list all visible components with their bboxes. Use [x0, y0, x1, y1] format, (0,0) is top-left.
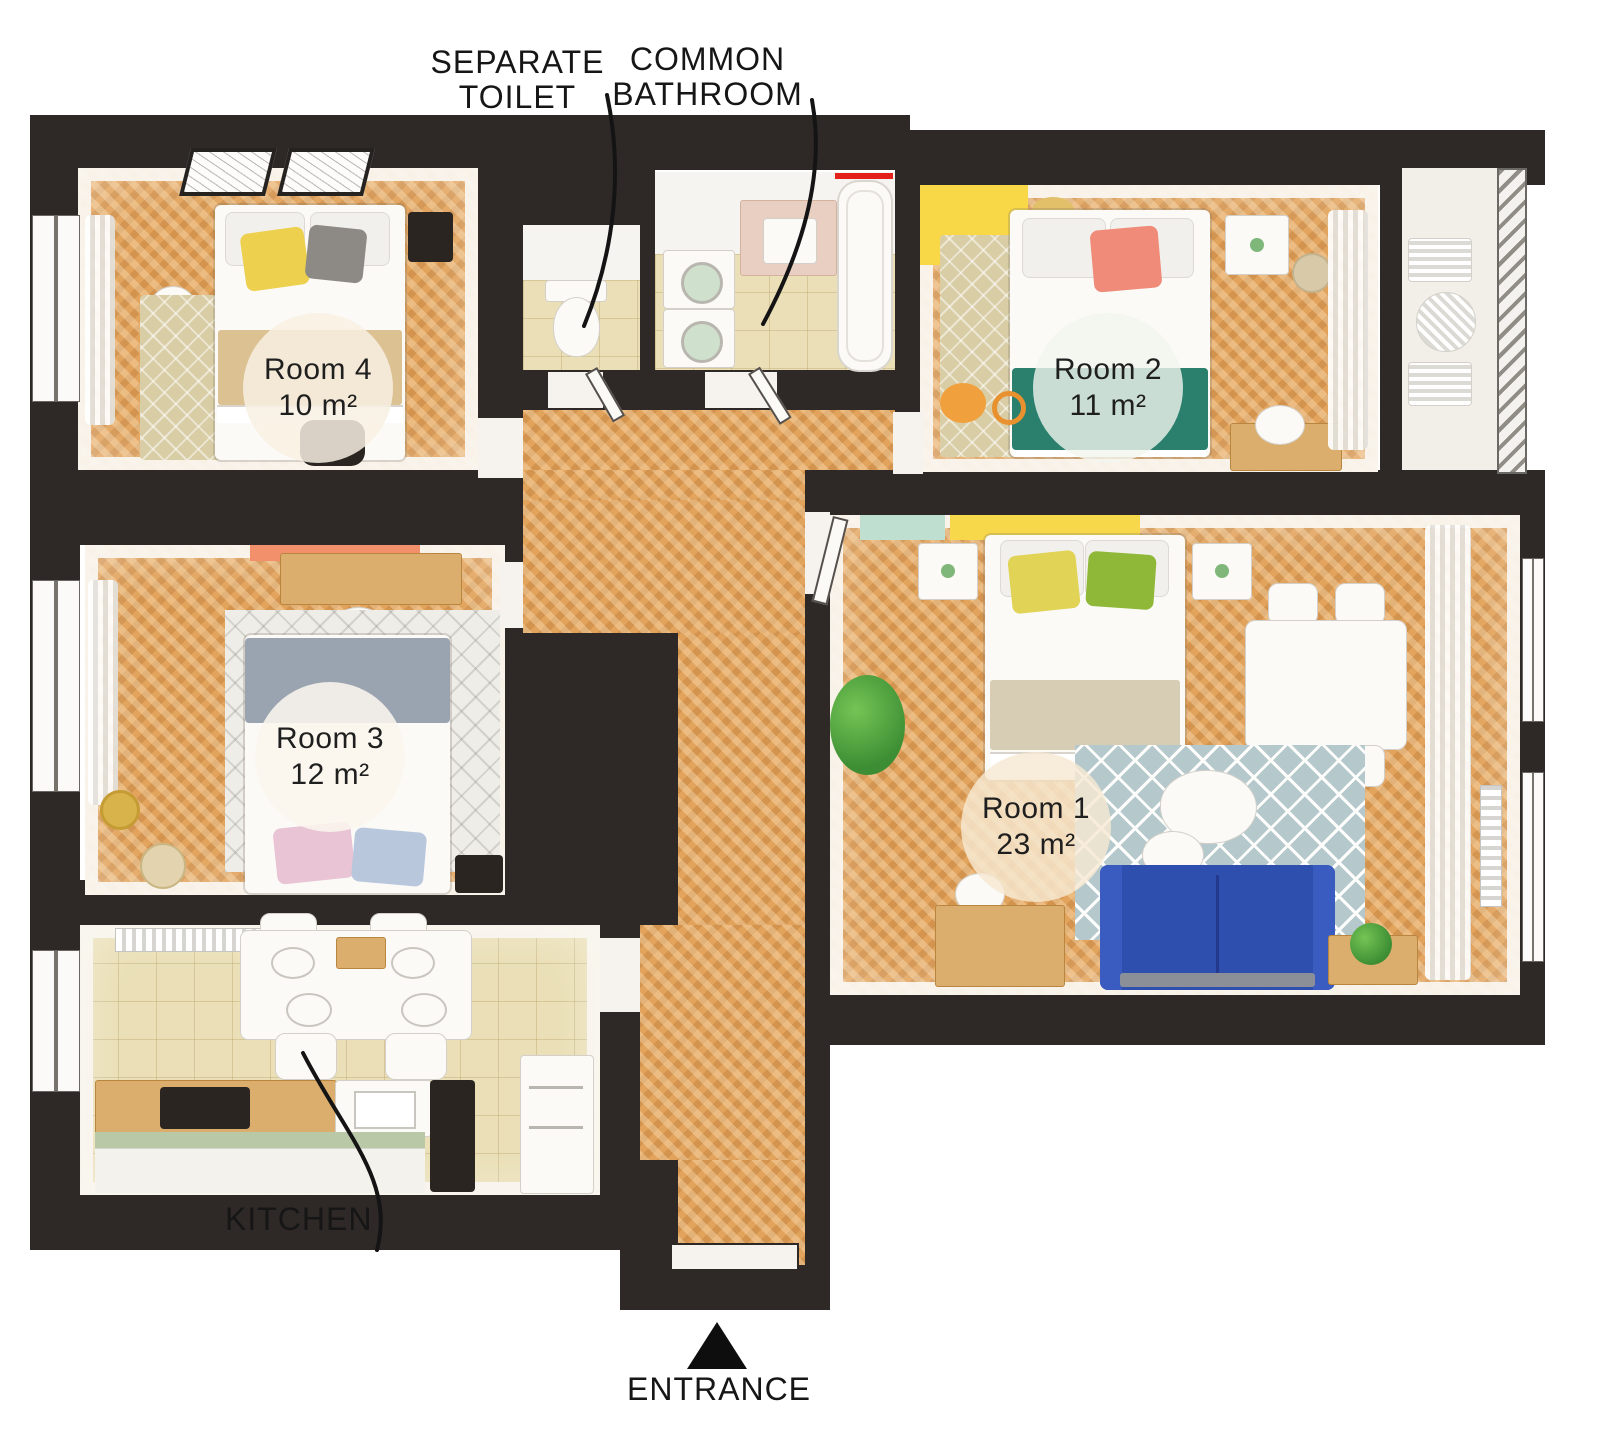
- washing-machine: [663, 250, 735, 309]
- room-4-picture-frame: [179, 148, 277, 196]
- orange-ring: [992, 391, 1026, 425]
- wall-room2-balcony-divider: [1380, 130, 1402, 515]
- kitchen-chair: [275, 1033, 337, 1080]
- wall-toilet-bath-divider: [640, 150, 655, 375]
- wall-entrance-bottom: [620, 1265, 812, 1310]
- room-1-radiator: [1480, 785, 1502, 907]
- floor-plan: Room 4 10 m² Room 2 11 m² Room 3 12 m² R…: [0, 0, 1600, 1440]
- hallway-floor-top-b: [523, 470, 805, 500]
- room-3-basket: [140, 843, 186, 889]
- toilet-bowl: [553, 297, 600, 357]
- room-name: Room 1: [982, 791, 1090, 827]
- room-4-window: [32, 215, 80, 402]
- room-name: Room 4: [264, 352, 372, 388]
- kitchen-door: [600, 938, 640, 1012]
- room-area: 23 m²: [996, 827, 1075, 863]
- balcony-chair: [1408, 238, 1472, 282]
- room-1-curtain: [1425, 525, 1471, 980]
- room-1-mint-accent: [860, 515, 945, 540]
- kitchen-dark-cabinet: [430, 1080, 475, 1192]
- bathtub: [837, 180, 893, 372]
- kitchen-sink: [354, 1091, 416, 1129]
- room-4-curtain: [85, 215, 115, 425]
- blue-pillow: [351, 827, 427, 887]
- bench-blanket: [990, 680, 1180, 750]
- separate-toilet-label: SEPARATE TOILET: [420, 45, 615, 114]
- blue-sofa: [1100, 865, 1335, 990]
- hallway-floor-top: [523, 410, 895, 470]
- room-1-nightstand: [918, 543, 978, 600]
- gold-mirror: [100, 790, 140, 830]
- entrance-arrow-icon: [687, 1322, 747, 1369]
- washing-machine: [663, 309, 735, 368]
- orange-stool: [940, 383, 986, 423]
- room-4-label: Room 4 10 m²: [243, 313, 393, 463]
- coral-pillow: [1089, 225, 1162, 293]
- room-area: 11 m²: [1070, 388, 1147, 424]
- stove: [160, 1087, 250, 1129]
- room-2-curtain: [1328, 210, 1368, 450]
- wall-toilet-top: [510, 150, 655, 225]
- kitchen-fridge: [520, 1055, 594, 1194]
- room-3-door: [500, 562, 523, 628]
- room-2-desk-chair: [1255, 405, 1305, 445]
- hallway-floor-connector: [678, 633, 805, 925]
- room-2-label: Room 2 11 m²: [1033, 313, 1183, 463]
- entrance-door: [670, 1243, 799, 1271]
- wall-room2-bottom: [805, 470, 1545, 518]
- bathroom-sink: [763, 218, 817, 264]
- room-2-door: [893, 412, 923, 474]
- room-1-nightstand: [1192, 543, 1252, 600]
- dining-table: [1245, 620, 1407, 750]
- entrance-label: ENTRANCE: [627, 1372, 807, 1407]
- room-1-window: [1522, 772, 1544, 962]
- room-3-desk: [280, 553, 462, 605]
- red-towel-bar: [835, 173, 893, 179]
- balcony-chair: [1408, 362, 1472, 406]
- kitchen-table: [240, 930, 472, 1040]
- room-4-nightstand: [408, 212, 453, 262]
- room-area: 12 m²: [290, 757, 369, 793]
- cutting-board: [336, 937, 386, 969]
- kitchen-cabinets: [95, 1148, 425, 1193]
- room-3-speaker: [455, 855, 503, 893]
- basket: [1292, 253, 1332, 293]
- room-2-nightstand: [1225, 215, 1289, 275]
- kitchen-green-counter: [95, 1132, 425, 1148]
- dining-chair: [1268, 583, 1318, 625]
- balcony-table: [1416, 292, 1476, 352]
- green-pillow: [1085, 551, 1157, 611]
- wall-room1-left: [805, 490, 830, 1310]
- room-1-desk: [935, 905, 1065, 987]
- room-3-curtain: [88, 580, 118, 805]
- kitchen-window: [32, 950, 80, 1092]
- wall-room1-bottom: [805, 995, 1545, 1045]
- room-1-window: [1522, 558, 1544, 722]
- yellow-pillow: [239, 226, 310, 292]
- room-4-picture-frame: [277, 148, 375, 196]
- bathroom-counter: [740, 200, 837, 276]
- kitchen-label: KITCHEN: [225, 1202, 370, 1237]
- room-1-label: Room 1 23 m²: [961, 752, 1111, 902]
- hallway-floor-lower: [640, 925, 805, 1160]
- room-area: 10 m²: [278, 388, 357, 424]
- room-3-window: [32, 580, 80, 792]
- common-bathroom-label: COMMON BATHROOM: [610, 42, 805, 111]
- balcony-railing: [1497, 168, 1527, 474]
- balcony-floor: [1402, 168, 1497, 470]
- kitchen-floor: [80, 925, 600, 1195]
- room-1-bed: [985, 535, 1185, 780]
- room-name: Room 3: [276, 721, 384, 757]
- kitchen-counter-white: [335, 1080, 432, 1137]
- yellow-pillow: [1007, 550, 1081, 615]
- wall-room4-room3: [30, 470, 530, 545]
- bathroom-floor: [655, 172, 895, 370]
- room-4-door: [478, 418, 523, 478]
- room-name: Room 2: [1054, 352, 1162, 388]
- room-3-label: Room 3 12 m²: [255, 682, 405, 832]
- hallway-floor-mid: [523, 500, 805, 633]
- room-1-floor: [830, 515, 1520, 995]
- potted-plant: [830, 675, 905, 775]
- dining-chair: [1335, 583, 1385, 625]
- shelf-plant: [1350, 923, 1392, 965]
- wall-top-left: [30, 115, 910, 170]
- kitchen-chair: [385, 1033, 447, 1080]
- toilet-room-floor: [523, 225, 640, 370]
- gray-pillow: [304, 224, 367, 284]
